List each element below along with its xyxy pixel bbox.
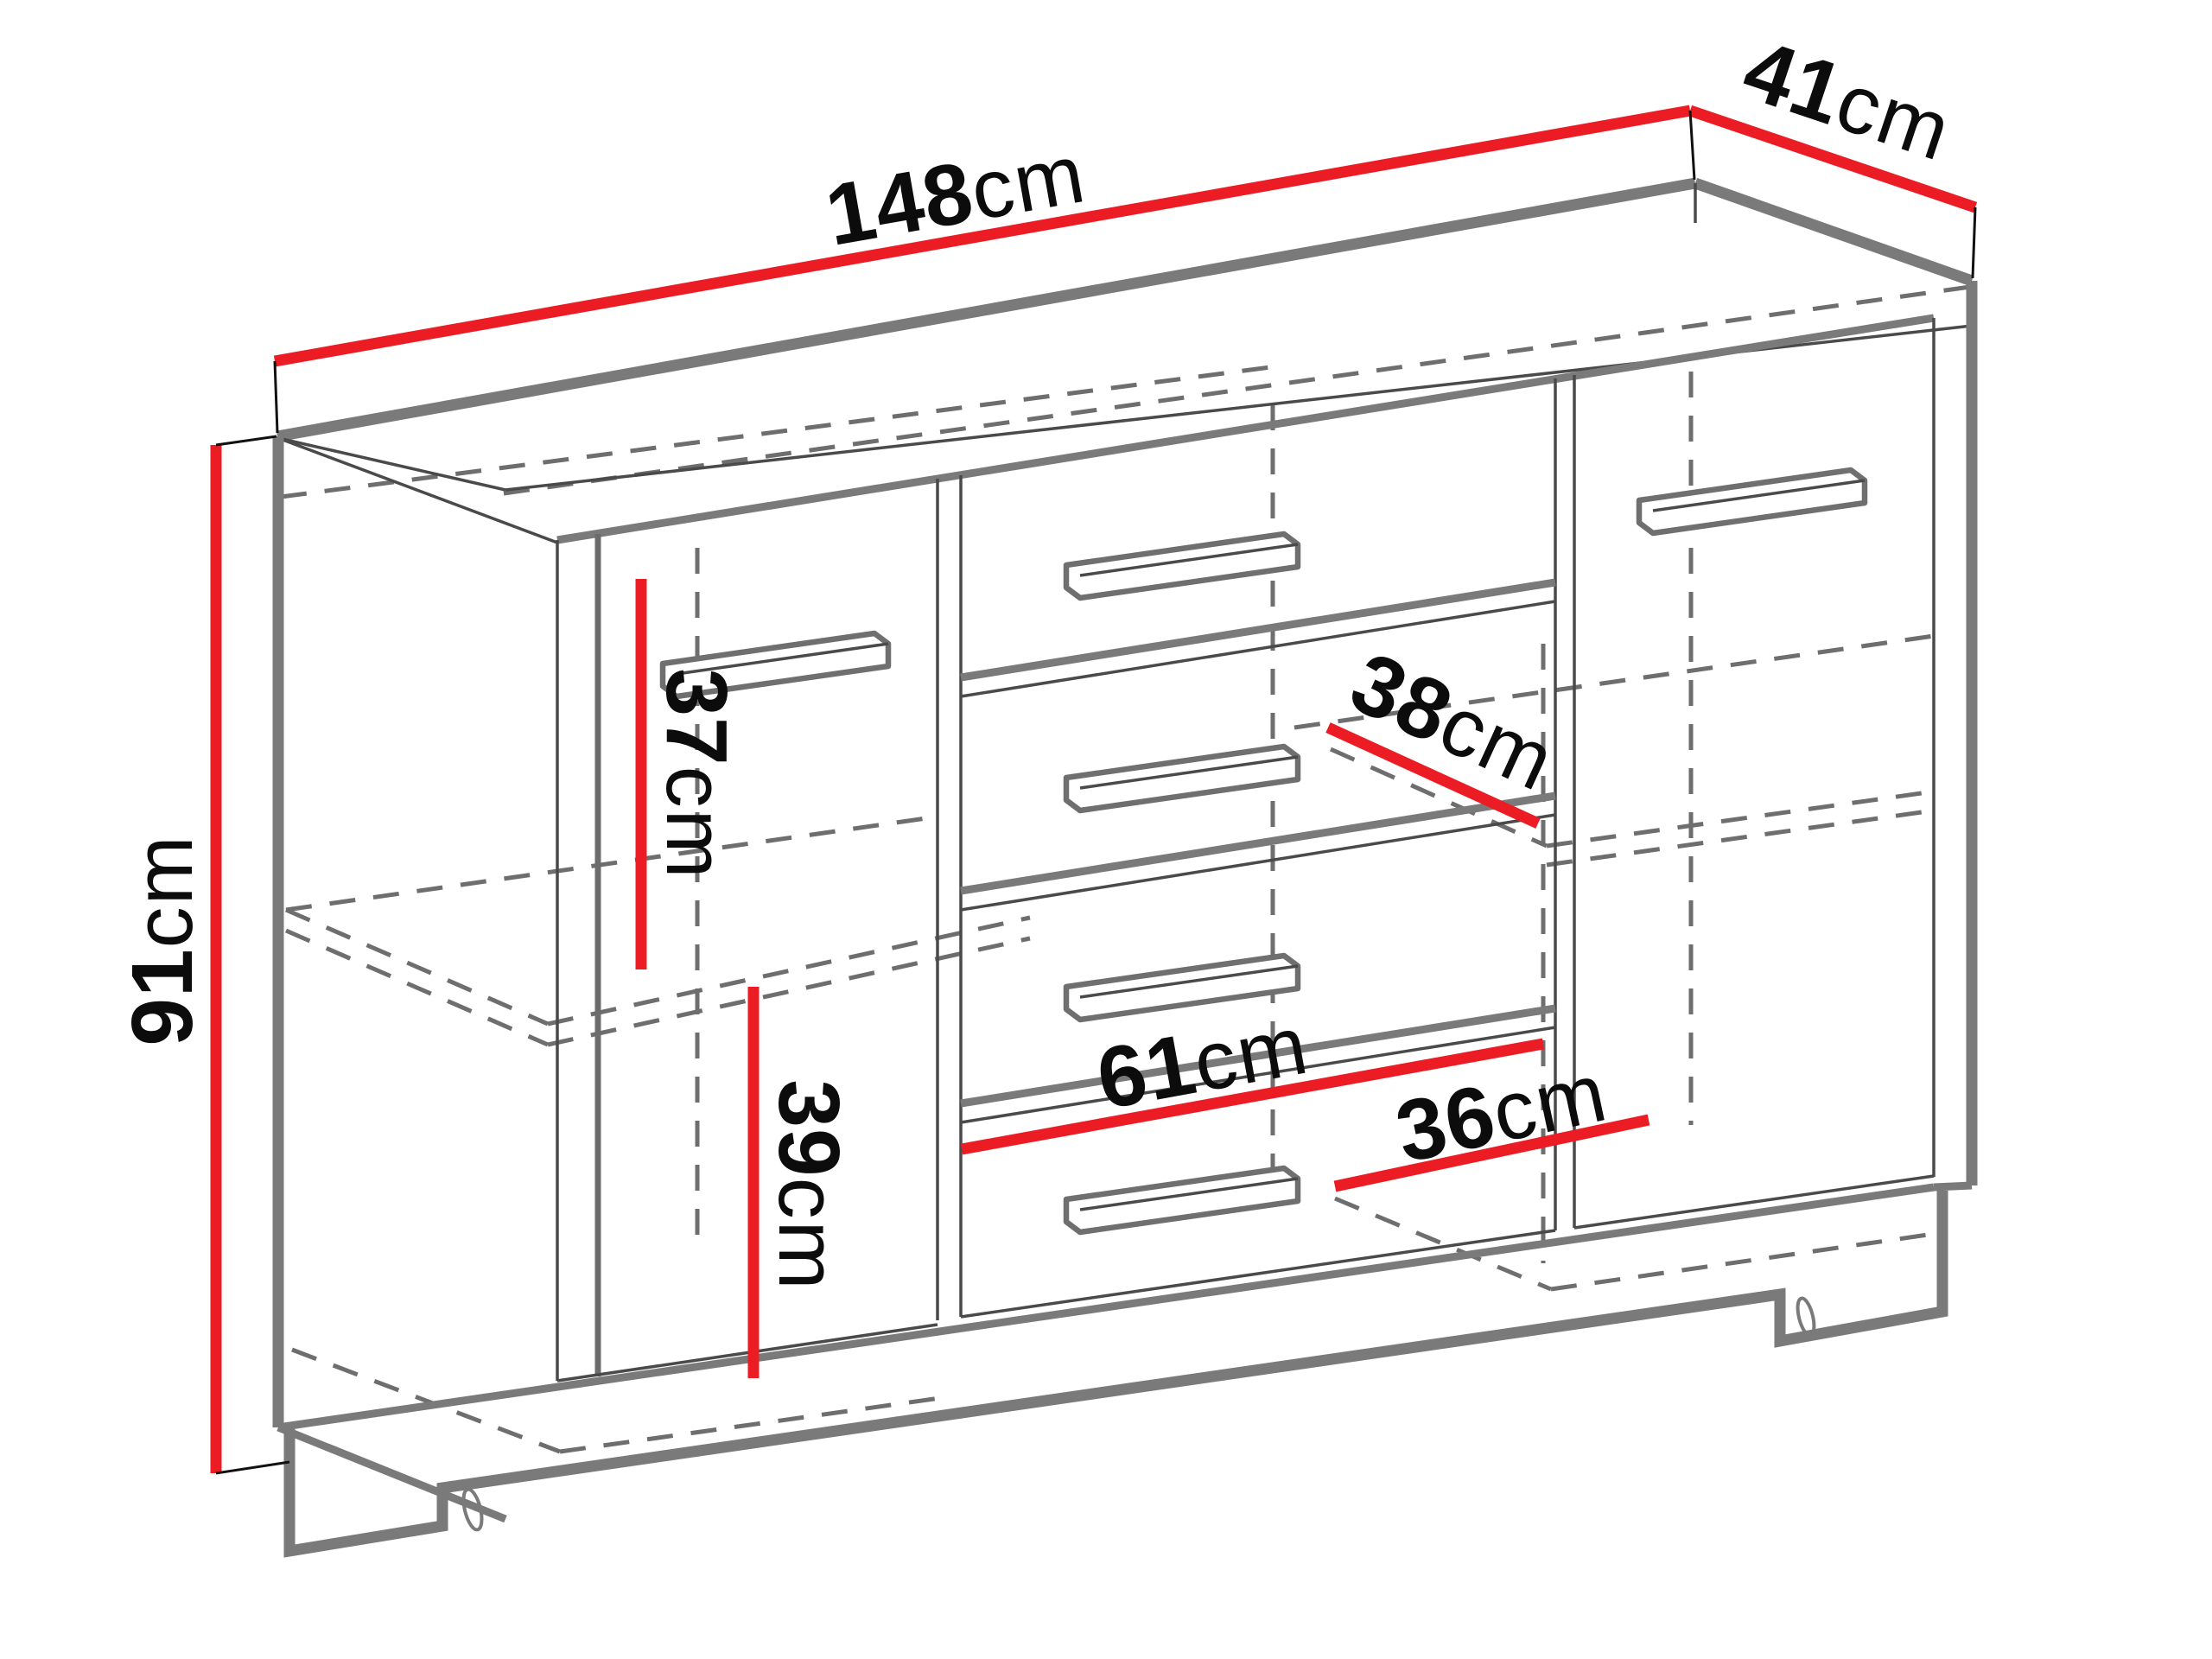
drawer-separator-1 — [961, 582, 1555, 677]
left-door — [557, 479, 938, 1381]
plinth-outline — [289, 1191, 1942, 1551]
label-upper-compartment: 37cm — [648, 668, 745, 880]
left-shelf-back-edge — [286, 817, 938, 910]
right-door-bottom-edge — [1574, 1176, 1934, 1228]
drawer-separator-2 — [961, 796, 1555, 891]
left-shelf-side-edge — [286, 910, 548, 1024]
dimension-labels: 148cm 41cm 91cm 37cm 39cm 38cm 61cm 36cm — [114, 21, 1964, 1292]
bottom-left-receding-edge — [278, 1427, 505, 1519]
hidden-back-top-edge — [504, 287, 1970, 493]
drawer-1-handle — [1066, 534, 1298, 598]
extension-tick — [275, 361, 277, 433]
hidden-lines — [281, 287, 1970, 1452]
right-door-handle-body — [1639, 470, 1865, 533]
drawer-2-handle — [1066, 747, 1298, 810]
label-lower-compartment: 39cm — [760, 1079, 857, 1291]
left-shelf-side-thickness — [286, 931, 548, 1045]
drawer-1-handle-body — [1066, 534, 1298, 598]
left-shelf-front-edge — [548, 918, 1030, 1024]
dimension-diagram: 148cm 41cm 91cm 37cm 39cm 38cm 61cm 36cm — [0, 0, 2212, 1659]
left-shelf-front-thickness — [548, 938, 1030, 1045]
extension-tick — [216, 1462, 289, 1473]
drawer-column-bottom-edge — [961, 1230, 1555, 1317]
bottom-right-receding-edge — [1934, 1185, 1972, 1187]
drawer-4-handle-body — [1066, 1168, 1298, 1232]
label-depth: 41cm — [1732, 21, 1964, 180]
extension-tick — [1690, 111, 1694, 180]
drawer-4-handle — [1066, 1168, 1298, 1232]
left-floor-side-edge — [292, 1350, 560, 1452]
right-door-handle — [1639, 470, 1865, 533]
drawer-separator-2-gap — [961, 815, 1555, 910]
hidden-back-panel-edge — [281, 367, 1270, 497]
interior-floor-hidden — [292, 1198, 1934, 1452]
drawer-2-handle-body — [1066, 747, 1298, 810]
left-door-bottom-edge — [557, 1325, 938, 1381]
plinth-base — [289, 1191, 1942, 1551]
right-floor-back-edge — [1551, 1234, 1934, 1289]
right-foot-detail — [1795, 1297, 1817, 1338]
label-height: 91cm — [114, 834, 211, 1046]
extension-tick — [1973, 207, 1975, 278]
extension-tick — [216, 436, 276, 445]
sideboard-diagram-canvas: 148cm 41cm 91cm 37cm 39cm 38cm 61cm 36cm — [0, 0, 2212, 1659]
